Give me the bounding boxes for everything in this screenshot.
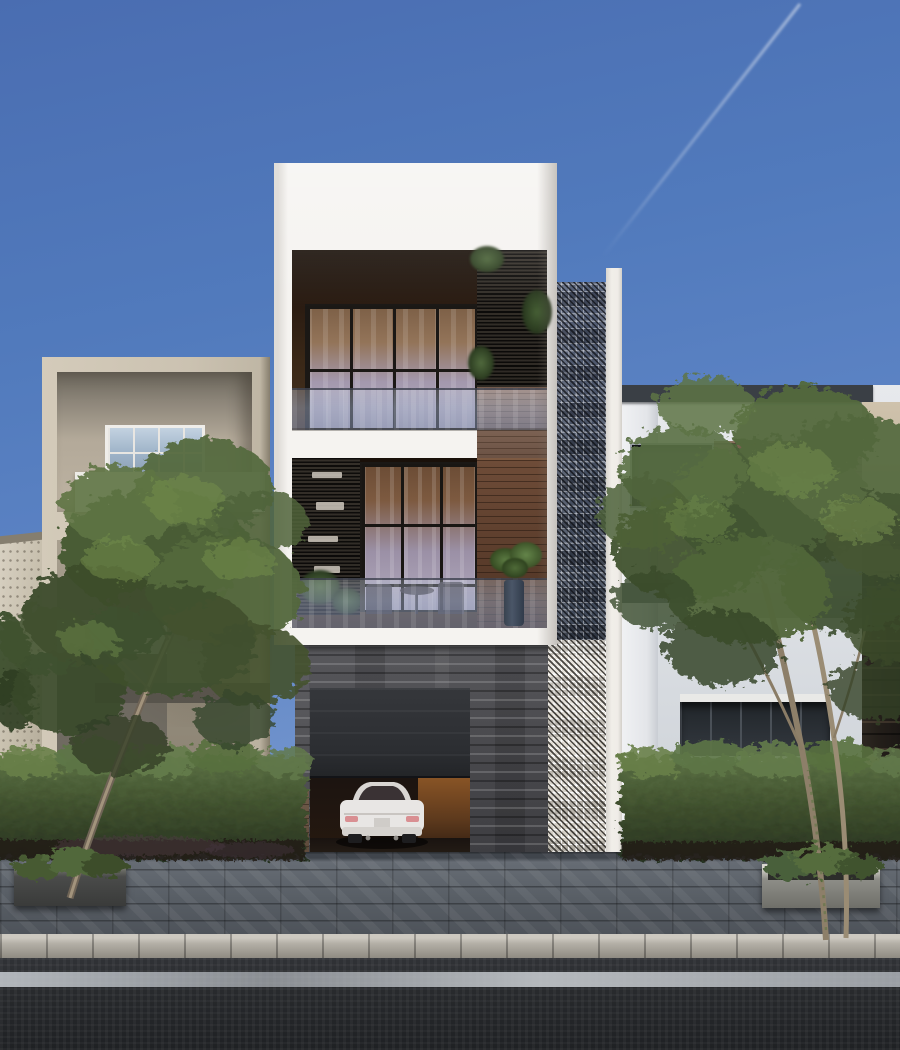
- street-scene: [0, 0, 900, 1050]
- left-tree: [0, 439, 310, 898]
- right-tree: [597, 375, 900, 940]
- tree-layer: [0, 0, 900, 1050]
